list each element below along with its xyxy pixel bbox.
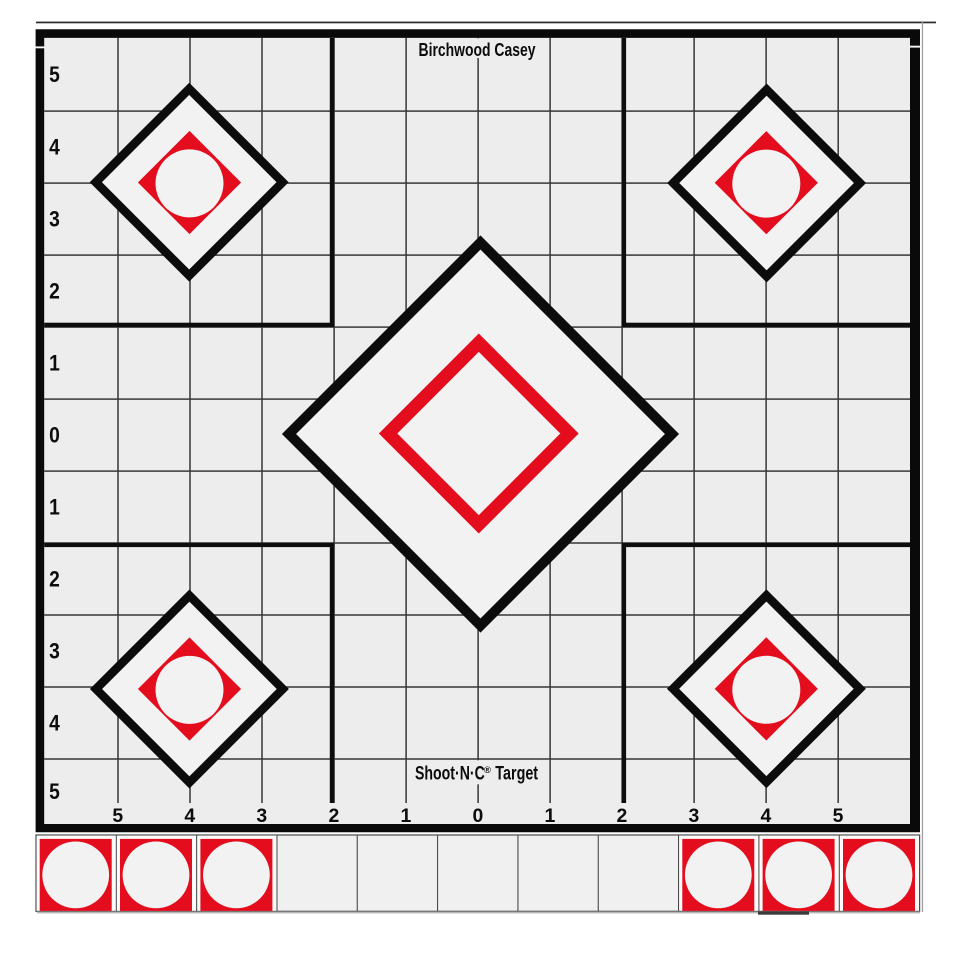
svg-text:4: 4	[761, 805, 772, 827]
svg-text:4: 4	[49, 135, 60, 160]
svg-text:4: 4	[49, 711, 60, 736]
svg-text:Shoot·N·C: Shoot·N·C	[415, 763, 485, 785]
svg-text:4: 4	[184, 805, 195, 827]
svg-text:3: 3	[49, 207, 60, 232]
svg-text:2: 2	[329, 805, 340, 827]
svg-text:®: ®	[484, 765, 491, 776]
svg-text:2: 2	[49, 567, 60, 592]
svg-text:5: 5	[49, 62, 60, 87]
svg-text:1: 1	[401, 805, 412, 827]
svg-text:1: 1	[545, 805, 556, 827]
svg-text:5: 5	[49, 779, 60, 804]
svg-text:0: 0	[49, 423, 60, 448]
svg-text:0: 0	[473, 805, 484, 827]
svg-text:1: 1	[49, 495, 60, 520]
svg-text:3: 3	[49, 639, 60, 664]
svg-text:Birchwood Casey: Birchwood Casey	[419, 40, 536, 60]
svg-text:Target: Target	[495, 763, 538, 785]
svg-text:5: 5	[112, 805, 123, 827]
svg-text:3: 3	[256, 805, 267, 827]
svg-text:5: 5	[833, 805, 844, 827]
svg-text:3: 3	[689, 805, 700, 827]
svg-text:1: 1	[49, 351, 60, 376]
svg-text:2: 2	[617, 805, 628, 827]
svg-text:2: 2	[49, 279, 60, 304]
